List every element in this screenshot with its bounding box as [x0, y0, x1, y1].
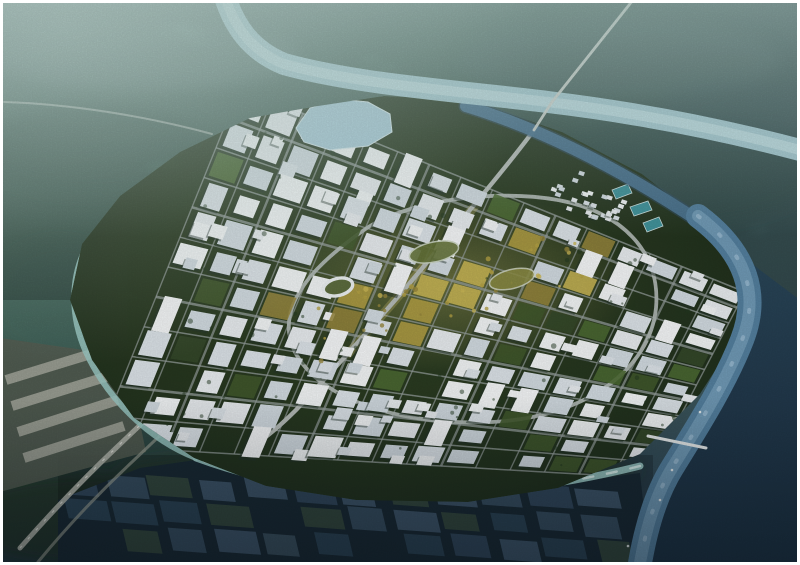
aerial-city-render — [0, 0, 800, 565]
film-grain — [0, 0, 800, 565]
scene-canvas — [0, 0, 800, 565]
